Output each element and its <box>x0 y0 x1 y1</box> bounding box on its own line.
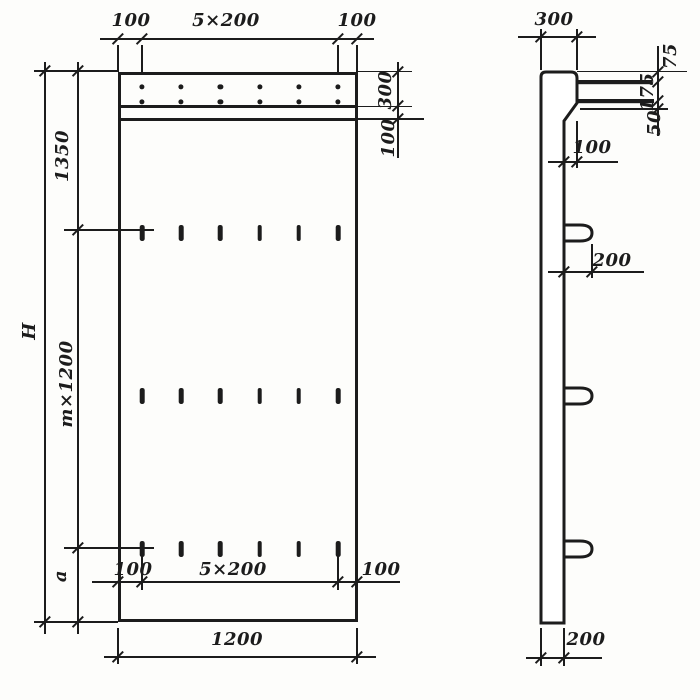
lifting-loop-1 <box>564 225 592 241</box>
dim-label-50: 50 <box>646 110 664 136</box>
slot-dash-r1-c3 <box>257 388 262 404</box>
slot-dash-r1-c4 <box>297 388 302 404</box>
line-dim-line-step <box>548 161 618 163</box>
slot-dash-r0-c4 <box>297 225 302 241</box>
line-dim-line-overall-width <box>104 656 376 658</box>
line-ext-top-right-corner <box>356 45 358 72</box>
line-ext-slot-right <box>337 556 339 590</box>
line-band-bottom-line <box>118 105 358 108</box>
slot-dash-r2-c3 <box>257 541 262 557</box>
slot-dash-r1-c0 <box>140 388 145 404</box>
dim-label-top-5x200: 5×200 <box>192 12 260 30</box>
line-ext-top-left-corner <box>117 45 119 72</box>
slot-dash-r0-c1 <box>179 225 184 241</box>
slot-dash-r2-c2 <box>218 541 223 557</box>
line-ext-line-side-top-right <box>577 71 687 73</box>
slot-dash-r0-c3 <box>257 225 262 241</box>
slot-dash-r0-c2 <box>218 225 223 241</box>
dim-label-strip-100: 100 <box>380 118 398 157</box>
line-ext-top-first-hole <box>141 45 143 72</box>
dim-label-1350: 1350 <box>54 130 72 182</box>
dim-label-loop-200: 200 <box>592 252 631 270</box>
lifting-loop-2 <box>564 388 592 404</box>
line-ext-top-last-hole <box>337 45 339 72</box>
line-dim-line-overall-height <box>44 62 46 634</box>
panel-front-outline <box>118 72 358 622</box>
dim-label-mx1200: m×1200 <box>58 340 76 427</box>
slot-dash-r1-c1 <box>179 388 184 404</box>
dim-label-bottom-right-100: 100 <box>361 561 400 579</box>
dim-label-a: a <box>52 570 70 582</box>
slot-dash-r1-c5 <box>336 388 341 404</box>
slot-dash-r2-c4 <box>297 541 302 557</box>
dim-label-step-100: 100 <box>572 139 611 157</box>
dim-label-bottom-5x200: 5×200 <box>199 561 267 579</box>
dim-label-75: 75 <box>662 43 680 69</box>
engineering-drawing-canvas: 1005×2001003001001350Hm×1200a1005×200100… <box>0 0 700 700</box>
slot-dash-r0-c5 <box>336 225 341 241</box>
dim-label-side-300: 300 <box>534 11 573 29</box>
dim-label-top-right-100: 100 <box>337 12 376 30</box>
dim-label-bottom-left-100: 100 <box>113 561 152 579</box>
lifting-loop-3 <box>564 541 592 557</box>
line-dim-line-side-top <box>518 36 596 38</box>
slot-dash-r2-c5 <box>336 541 341 557</box>
dim-label-H: H <box>21 322 39 340</box>
slot-dash-r1-c2 <box>218 388 223 404</box>
slot-dash-r0-c0 <box>140 225 145 241</box>
dim-label-175: 175 <box>639 72 657 111</box>
slot-dash-r2-c1 <box>179 541 184 557</box>
slot-dash-r2-c0 <box>140 541 145 557</box>
line-strip-bottom-line <box>118 118 358 121</box>
dim-label-1200: 1200 <box>211 631 263 649</box>
dim-label-band-300: 300 <box>377 70 395 109</box>
dim-label-side-bottom-200: 200 <box>566 631 605 649</box>
dim-label-top-left-100: 100 <box>111 12 150 30</box>
